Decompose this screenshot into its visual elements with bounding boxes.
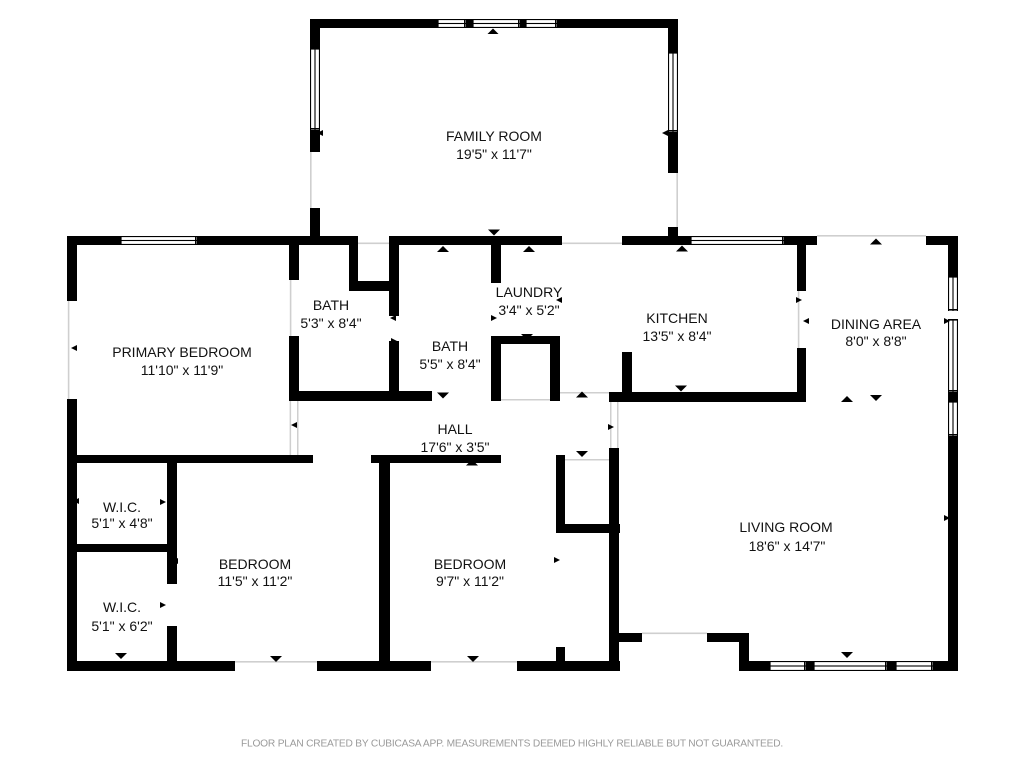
svg-text:LIVING ROOM: LIVING ROOM bbox=[739, 519, 832, 535]
svg-text:PRIMARY BEDROOM: PRIMARY BEDROOM bbox=[112, 344, 252, 360]
svg-text:LAUNDRY: LAUNDRY bbox=[496, 284, 563, 300]
svg-text:FAMILY ROOM: FAMILY ROOM bbox=[446, 128, 542, 144]
svg-text:18'6" x 14'7": 18'6" x 14'7" bbox=[749, 538, 826, 554]
svg-text:FLOOR PLAN CREATED BY CUBICASA: FLOOR PLAN CREATED BY CUBICASA APP. MEAS… bbox=[241, 739, 783, 750]
svg-text:DINING AREA: DINING AREA bbox=[831, 316, 922, 332]
svg-text:5'3" x 8'4": 5'3" x 8'4" bbox=[300, 315, 361, 331]
svg-text:3'4" x 5'2": 3'4" x 5'2" bbox=[498, 302, 559, 318]
svg-text:5'1" x 4'8": 5'1" x 4'8" bbox=[91, 515, 152, 531]
svg-text:9'7" x 11'2": 9'7" x 11'2" bbox=[436, 573, 504, 589]
svg-text:11'10" x 11'9": 11'10" x 11'9" bbox=[141, 362, 224, 378]
svg-text:HALL: HALL bbox=[437, 421, 472, 437]
svg-text:BEDROOM: BEDROOM bbox=[219, 556, 291, 572]
svg-text:11'5" x 11'2": 11'5" x 11'2" bbox=[218, 573, 293, 589]
svg-text:5'1" x 6'2": 5'1" x 6'2" bbox=[91, 618, 152, 634]
svg-text:BATH: BATH bbox=[432, 338, 468, 354]
svg-text:19'5" x 11'7": 19'5" x 11'7" bbox=[456, 146, 532, 162]
svg-text:W.I.C.: W.I.C. bbox=[103, 499, 141, 515]
svg-text:W.I.C.: W.I.C. bbox=[103, 599, 141, 615]
svg-text:8'0" x 8'8": 8'0" x 8'8" bbox=[845, 333, 906, 349]
svg-text:KITCHEN: KITCHEN bbox=[646, 310, 707, 326]
svg-text:13'5" x 8'4": 13'5" x 8'4" bbox=[643, 328, 712, 344]
svg-text:BEDROOM: BEDROOM bbox=[434, 556, 506, 572]
svg-text:17'6" x 3'5": 17'6" x 3'5" bbox=[421, 439, 490, 455]
svg-text:BATH: BATH bbox=[313, 297, 349, 313]
svg-text:5'5" x 8'4": 5'5" x 8'4" bbox=[419, 356, 480, 372]
